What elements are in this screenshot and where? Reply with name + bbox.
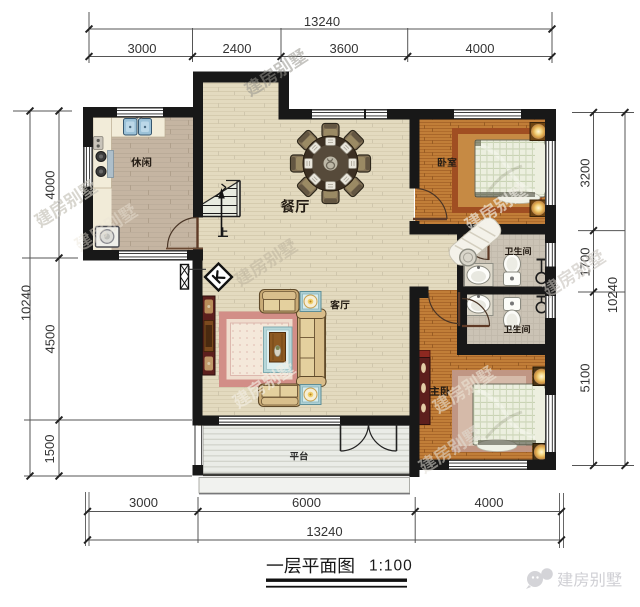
svg-text:1500: 1500 — [42, 435, 57, 464]
svg-text:4000: 4000 — [466, 41, 495, 56]
svg-text:10240: 10240 — [19, 285, 34, 321]
svg-text:10240: 10240 — [605, 277, 620, 313]
svg-text:3200: 3200 — [578, 159, 593, 188]
svg-text:2400: 2400 — [223, 41, 252, 56]
svg-text:5100: 5100 — [578, 364, 593, 393]
svg-text:3600: 3600 — [330, 41, 359, 56]
svg-text:3000: 3000 — [129, 495, 158, 510]
svg-text:13240: 13240 — [306, 524, 342, 539]
svg-text:4000: 4000 — [43, 171, 58, 200]
svg-text:13240: 13240 — [304, 14, 340, 29]
svg-text:4500: 4500 — [43, 325, 58, 354]
svg-text:1:100: 1:100 — [369, 558, 413, 575]
svg-text:6000: 6000 — [292, 495, 321, 510]
svg-text:4000: 4000 — [475, 495, 504, 510]
svg-text:3000: 3000 — [128, 41, 157, 56]
